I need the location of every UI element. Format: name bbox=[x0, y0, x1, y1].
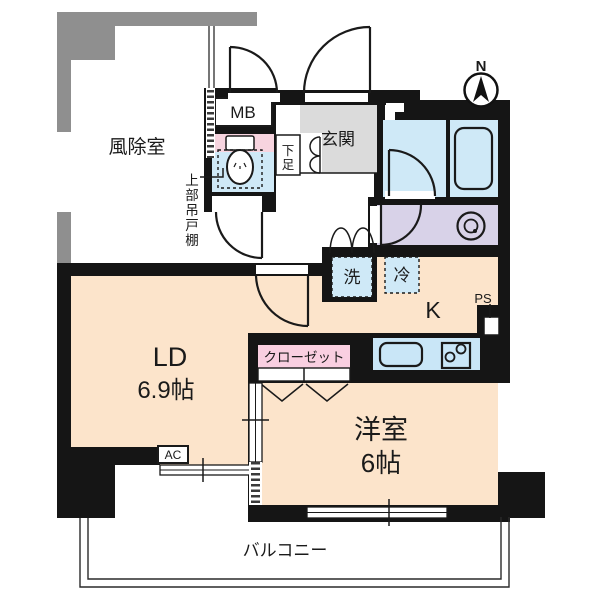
floor-washroom bbox=[377, 205, 498, 245]
floorplan-canvas: N 風除室 MB 玄関 下 足 上 部 吊 戸 棚 洗 冷 K PS LD 6.… bbox=[0, 0, 600, 600]
entrance-door-swing bbox=[304, 27, 370, 93]
label-kitchen: K bbox=[425, 297, 441, 323]
toilet-door-opening bbox=[212, 196, 262, 212]
label-cabinet-3: 吊 bbox=[185, 203, 199, 218]
label-windbreak: 風除室 bbox=[108, 136, 165, 158]
bath-divider bbox=[446, 120, 450, 197]
label-washer: 洗 bbox=[344, 268, 361, 287]
gray-wall-left-lower bbox=[57, 212, 71, 267]
bath-door-opening bbox=[385, 191, 435, 199]
gray-wall-left-upper bbox=[57, 12, 71, 132]
label-cabinet-5: 棚 bbox=[185, 233, 199, 248]
floorplan-svg: N 風除室 MB 玄関 下 足 上 部 吊 戸 棚 洗 冷 K PS LD 6.… bbox=[0, 0, 600, 600]
shoe-cabinet-nook bbox=[298, 133, 322, 175]
washing-machine-dot bbox=[473, 229, 477, 233]
bath-wall-notch bbox=[386, 103, 404, 112]
compass: N bbox=[465, 58, 498, 107]
label-balcony: バルコニー bbox=[243, 541, 328, 560]
label-shoe-2: 足 bbox=[282, 158, 295, 172]
mb-door-swing bbox=[230, 47, 277, 93]
ld-door-opening bbox=[256, 265, 308, 274]
entrance-door-opening bbox=[305, 93, 368, 102]
label-pipe-space: PS bbox=[474, 291, 492, 306]
wall-ld-bottom bbox=[57, 447, 160, 465]
label-entrance: 玄関 bbox=[321, 130, 355, 149]
pipe-space-box bbox=[484, 317, 499, 335]
toilet-tank bbox=[226, 136, 254, 150]
label-ac: AC bbox=[165, 448, 182, 462]
label-closet: クローゼット bbox=[264, 350, 345, 365]
compass-north-label: N bbox=[476, 58, 487, 75]
floor-bathroom bbox=[383, 120, 498, 197]
label-meter-box: MB bbox=[230, 103, 256, 122]
label-western-room-size: 6帖 bbox=[361, 448, 401, 478]
label-cabinet-1: 上 bbox=[185, 173, 199, 188]
wall-corner-bottom-left bbox=[57, 465, 115, 518]
wall-washroom-bottom bbox=[368, 245, 510, 257]
wall-corner-bottom-right bbox=[498, 472, 545, 518]
label-fridge: 冷 bbox=[394, 266, 411, 285]
toilet-door-swing bbox=[216, 212, 262, 258]
label-cabinet-4: 戸 bbox=[185, 218, 199, 233]
label-cabinet-2: 部 bbox=[185, 188, 199, 203]
label-shoe-1: 下 bbox=[282, 144, 295, 158]
mb-door-opening bbox=[228, 93, 280, 102]
label-western-room: 洋室 bbox=[354, 415, 408, 445]
label-living-dining: LD bbox=[153, 342, 188, 372]
label-living-dining-size: 6.9帖 bbox=[137, 377, 194, 404]
